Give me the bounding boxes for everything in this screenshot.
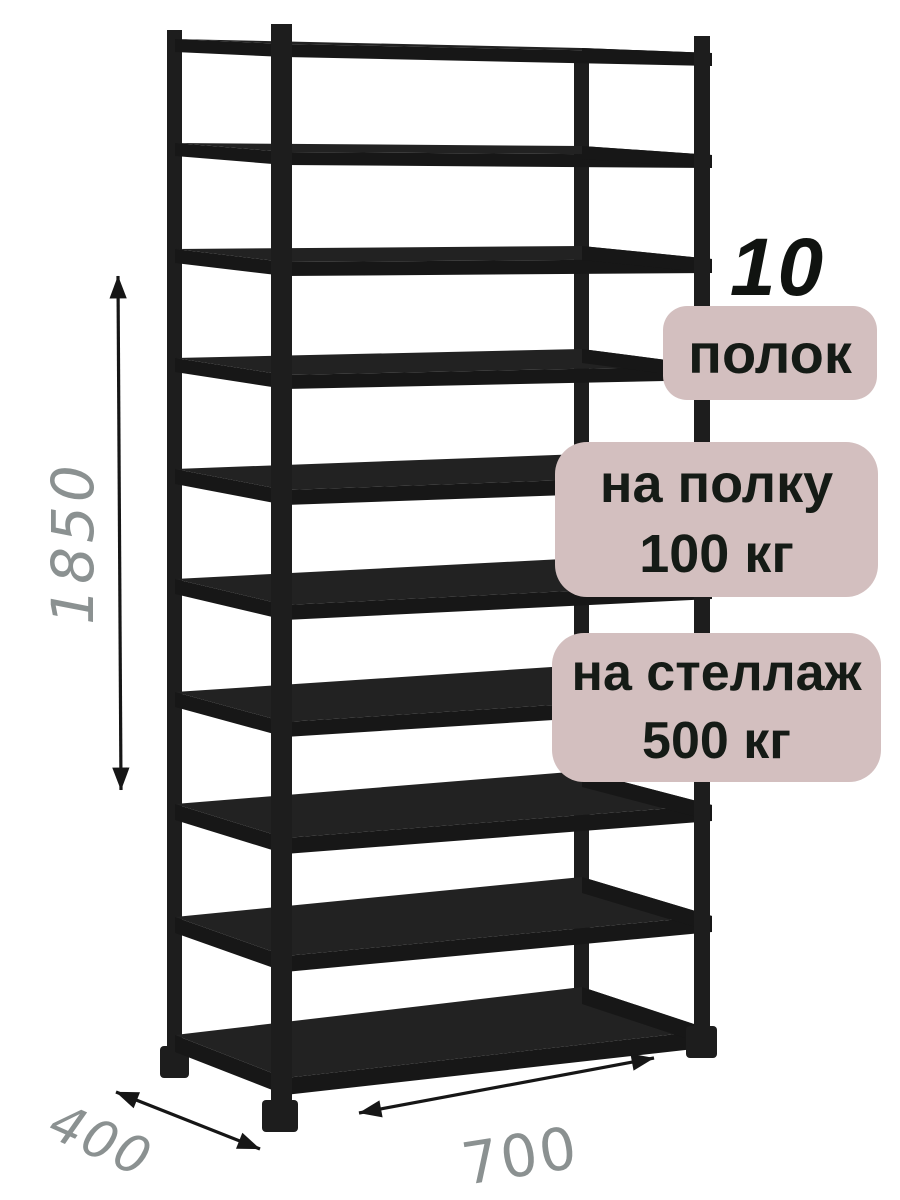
per-shelf-load-line2: 100 кг xyxy=(639,520,794,589)
product-image: 1850 400 700 10 полок на полку 100 кг на… xyxy=(0,0,900,1200)
shelf-count-unit-label: полок xyxy=(688,321,852,386)
per-rack-load-line1: на стеллаж xyxy=(572,640,862,708)
height-dimension-label: 1850 xyxy=(39,429,105,657)
rack-graphic xyxy=(0,0,900,1200)
per-shelf-load-badge: на полку 100 кг xyxy=(555,442,878,597)
shelf-count-badge: полок xyxy=(663,306,877,400)
per-rack-load-line2: 500 кг xyxy=(642,708,791,776)
height-arrow xyxy=(118,276,121,790)
per-rack-load-badge: на стеллаж 500 кг xyxy=(552,633,881,782)
per-shelf-load-line1: на полку xyxy=(600,450,833,519)
